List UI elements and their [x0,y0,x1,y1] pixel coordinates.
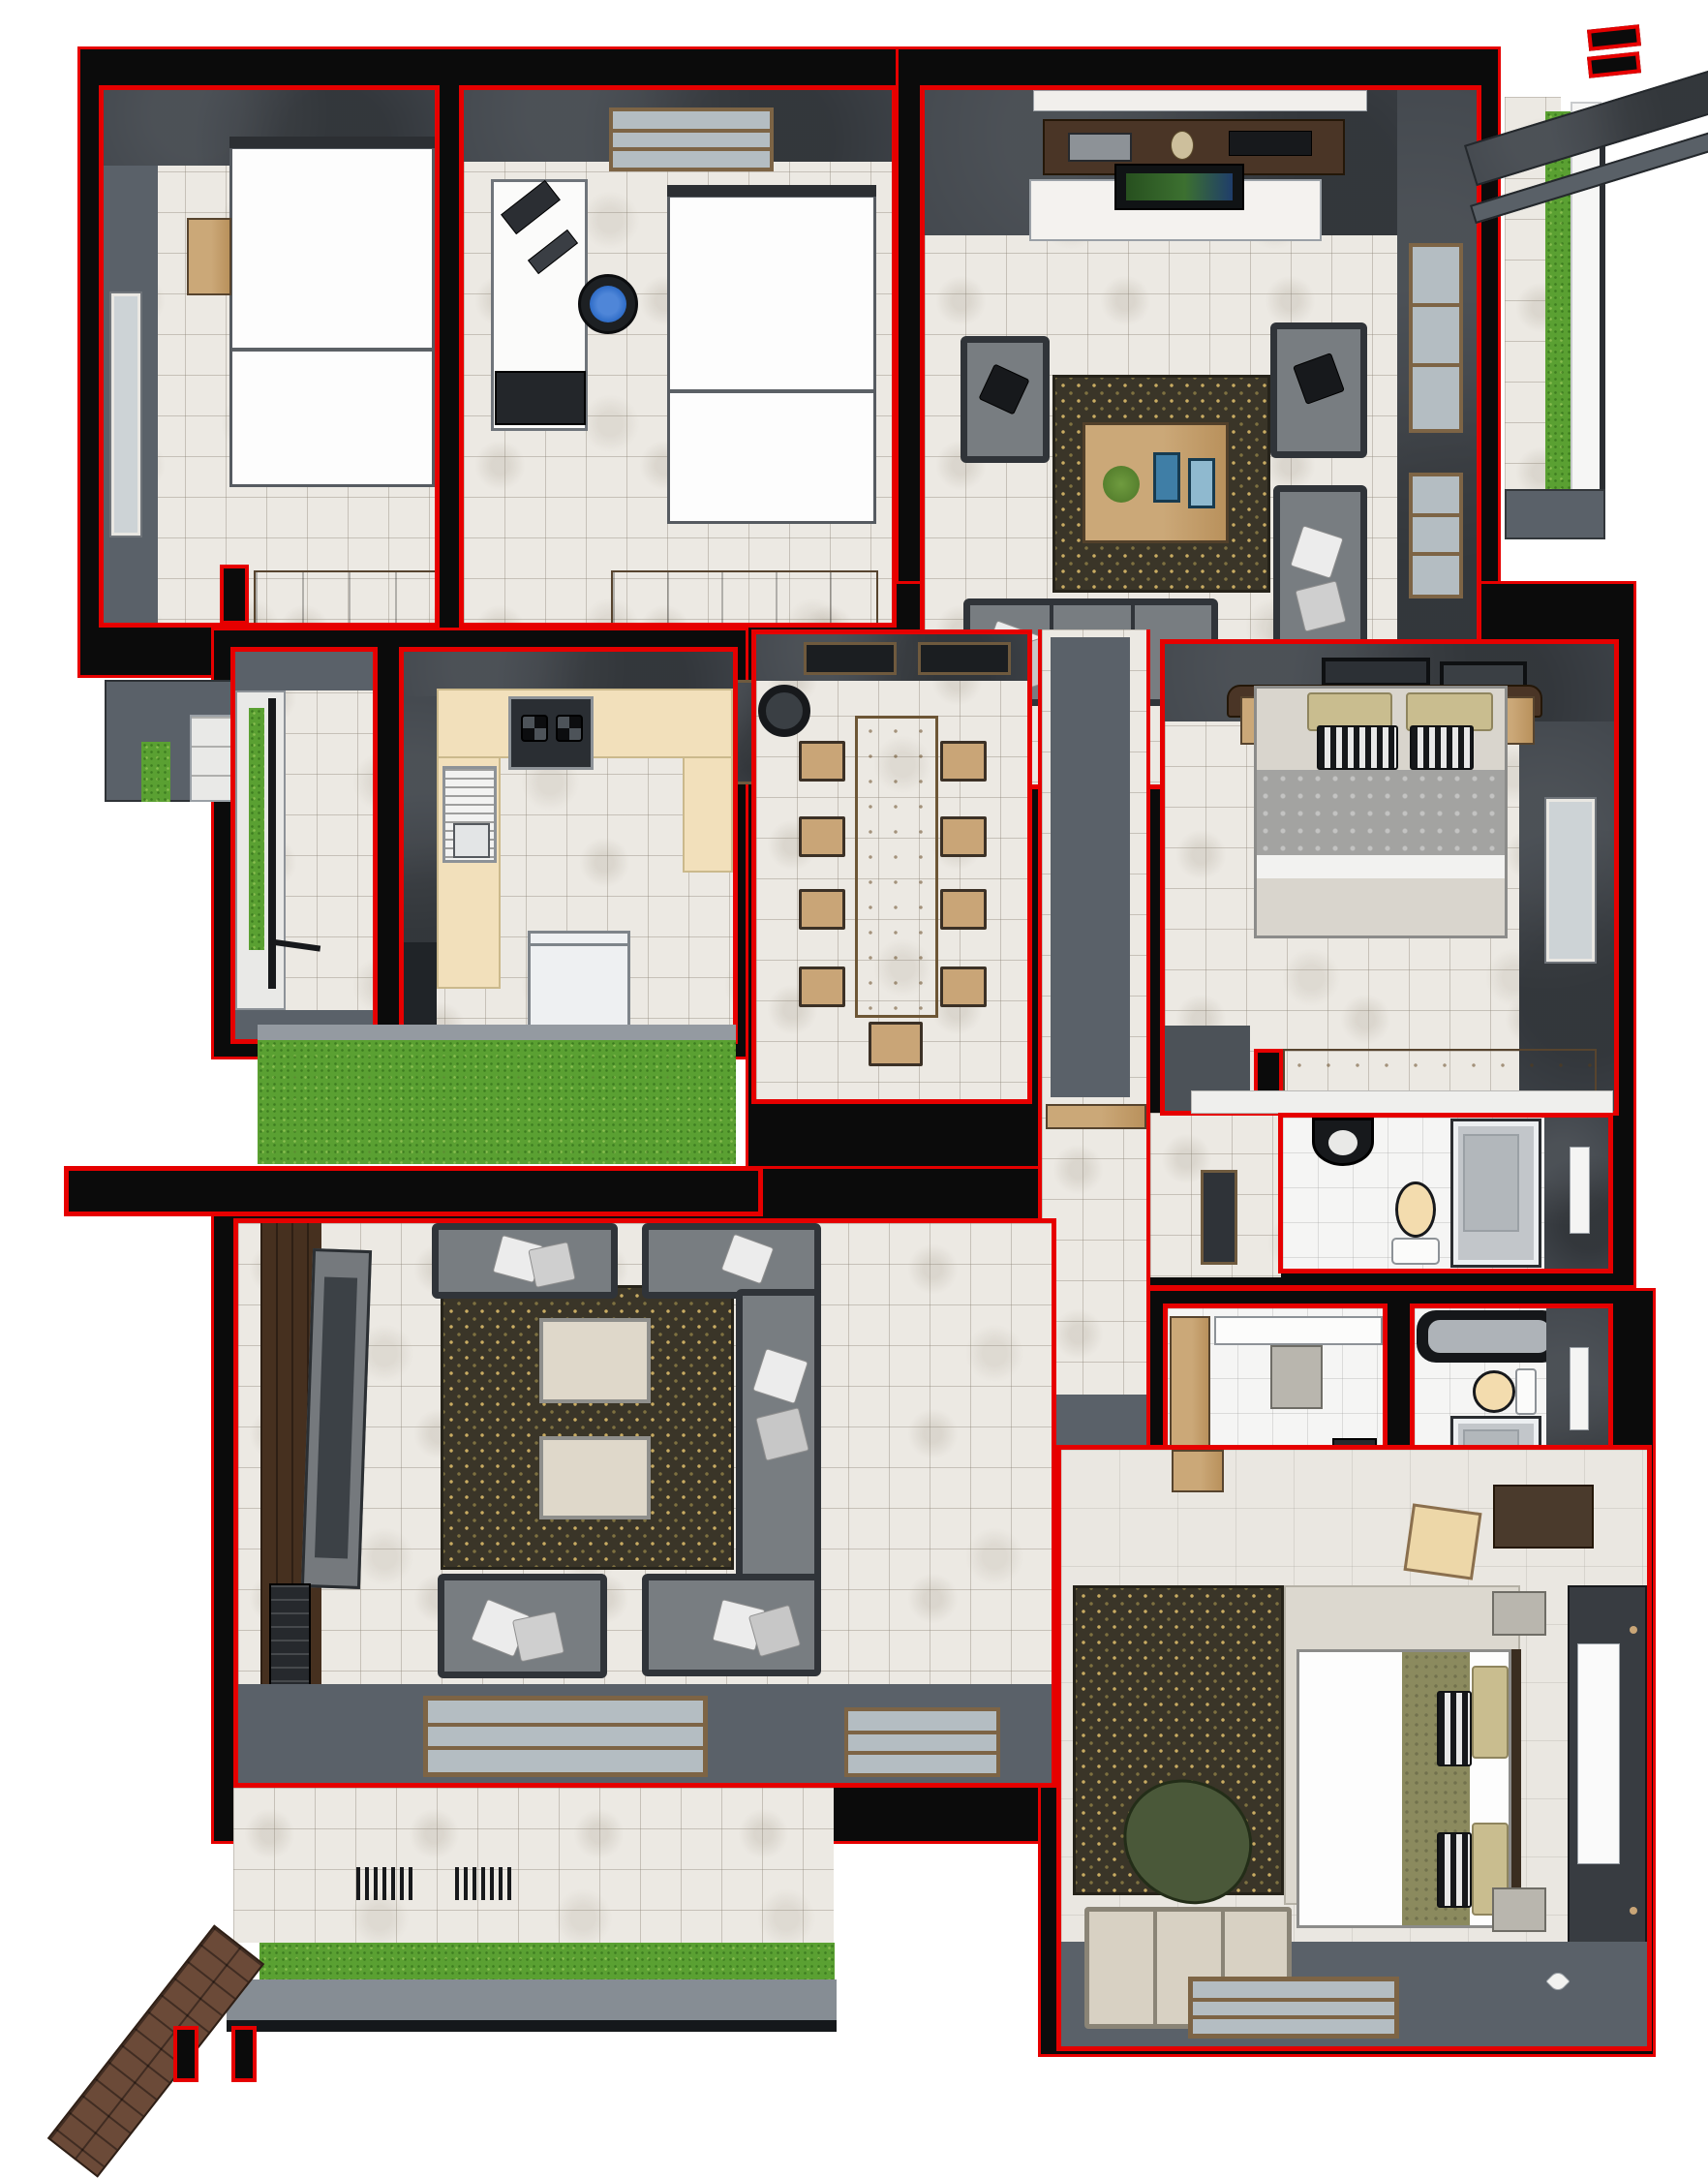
bedroom2-desk-cabinet [495,371,586,425]
dining-chair-l2 [799,816,845,857]
office-chair-seat [590,286,626,322]
living1-window-right-1 [1409,243,1463,433]
bedroom-3 [1056,1445,1652,2051]
hob-burner-2 [556,715,583,742]
living2-window-1 [423,1696,708,1777]
bedroom3-bed [1296,1649,1511,1928]
living2-sectional-bottom [642,1574,821,1676]
master-window [1546,799,1595,962]
bedroom2-bed-foldline [670,389,873,393]
front-fence-line [227,2020,837,2032]
bedroom1-door-mark [220,565,249,625]
closet-vanity-counter [1214,1316,1383,1345]
lawn-sill [258,1025,736,1040]
living-room-lower [233,1218,1056,1788]
kitchen [399,647,738,1044]
coffee-table-plant [1103,466,1140,503]
living1-floating-shelf [1033,90,1367,111]
dining-chair-l1 [799,741,845,782]
bedroom3-open-door [1403,1503,1481,1580]
tv-screen [1126,173,1233,200]
porch-wall-grille-2 [455,1867,513,1900]
bedroom1-wardrobe [254,570,438,625]
hall-shelf-niche [1201,1170,1237,1265]
bedroom3-window [1188,1977,1399,2039]
bedroom1-bed [229,146,435,487]
living2-loveseat-top [432,1223,618,1299]
kitchen-sink [442,766,497,863]
front-walkway [227,1979,837,2020]
bedroom3-cabinet-2 [1492,1887,1546,1932]
dining-chair-l3 [799,889,845,930]
bath2-toilet [1473,1366,1539,1417]
living2-loveseat-bottom [438,1574,607,1678]
living2-sectional-right [736,1289,821,1585]
console-av-gear [1229,131,1312,156]
side-lawn-strip [1545,111,1571,494]
kitchen-refrigerator [528,931,630,1029]
dining-chair-l4 [799,966,845,1007]
master-duvet [1257,770,1505,855]
bathroom-1 [1278,1113,1613,1273]
beam-end-mark-1 [1587,24,1641,51]
living2-sectional-top [642,1223,821,1299]
living1-armchair-left [961,336,1050,463]
bedroom-1 [99,85,440,628]
dining-chair-r2 [940,816,987,857]
passage-grass-view [249,708,264,950]
master-bedroom [1160,639,1619,1116]
front-wall-band [64,1166,763,1216]
side-white-fence-band [1571,102,1601,512]
dining-chair-r1 [940,741,987,782]
bedroom2-office-chair [578,274,638,334]
living1-armchair-right [1270,322,1367,458]
bedroom1-bed-foldline [232,348,432,352]
dining-end-chair [869,1022,923,1066]
porch-wall-grille-1 [356,1867,414,1900]
floorplan-canvas: { "document": { "kind": "architectural-3… [0,0,1708,2084]
kitchen-gas-hob [508,696,594,770]
coffee-table-picture-2 [1188,458,1215,508]
closet-cabinet [1270,1345,1323,1409]
bedroom-2 [459,85,897,628]
dining-table [855,716,938,1018]
console-tray [1068,133,1132,162]
dining-window-slot-1 [804,642,897,675]
bottom-mark-2 [231,2026,257,2082]
master-sheet-fold [1257,855,1505,878]
bedroom3-headboard [1511,1649,1521,1928]
walkway-end-sill [1505,489,1605,539]
corridor-wall-band [1051,637,1130,1097]
bath2-towel [1570,1347,1589,1430]
dining-chair-r3 [940,889,987,930]
bath2-bathtub [1417,1310,1562,1363]
living2-wall-tv [301,1248,372,1589]
master-ceiling-frame-1 [1322,658,1430,687]
bedroom2-bed [667,195,876,524]
bath1-towel [1570,1147,1590,1234]
dining-chair-r4 [940,966,987,1007]
dining-wall-fan [758,685,810,737]
front-porch [233,1788,834,1943]
bedroom3-wardrobe [1568,1585,1647,1965]
bedroom1-bed-headboard [229,137,435,148]
dining-window-slot-2 [918,642,1011,675]
bedroom1-nightstand [187,218,231,295]
living1-window-right-2 [1409,473,1463,598]
living2-window-2 [844,1707,1000,1777]
bedroom3-corner-bench-top [1493,1485,1594,1549]
dining-room [751,629,1032,1104]
bottom-mark-1 [173,2026,198,2082]
corridor-end-wall [1042,1395,1146,1445]
bedroom3-cabinet-1 [1492,1591,1546,1636]
bedroom1-window [111,293,140,536]
passage-top-wall [235,652,373,690]
bedroom2-window [609,107,774,171]
lawn-strip-front [259,1943,835,1979]
bath1-toilet [1391,1181,1440,1269]
sink-basin [453,823,490,858]
master-bed [1254,686,1508,938]
living2-coffee-table-1 [539,1318,651,1403]
coffee-table-picture-1 [1153,452,1180,503]
wardrobe-white-panel [1577,1643,1620,1864]
hall-door-header [1046,1104,1146,1129]
bedroom2-bed-headboard [667,185,876,197]
hob-burner-1 [521,715,548,742]
living2-coffee-table-2 [539,1436,651,1519]
wall-white-strip [1191,1090,1613,1114]
beam-end-mark-2 [1587,51,1641,78]
porch-grass-patch [141,742,170,802]
lawn-strip-middle [258,1040,736,1164]
bedroom3-door-post [1172,1450,1224,1492]
living1-tv [1114,164,1244,210]
garden-passage [230,647,378,1044]
console-vase [1171,131,1194,160]
bath1-shower [1453,1121,1539,1265]
bedroom2-dresser [611,570,878,625]
bath1-washbasin-mirror [1312,1118,1374,1166]
living1-coffee-table [1083,422,1229,543]
kitchen-counter-right [683,756,733,873]
